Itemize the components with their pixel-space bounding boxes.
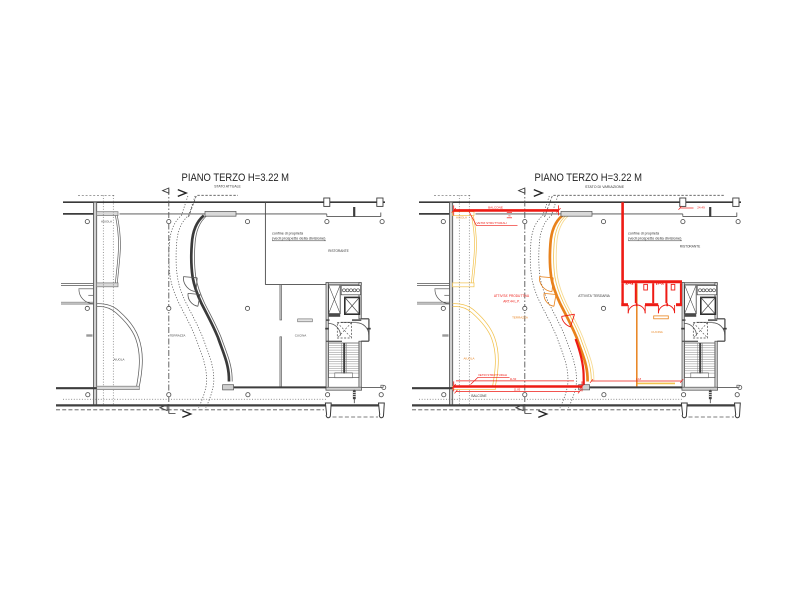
svg-text:CUCINA: CUCINA bbox=[295, 333, 307, 337]
svg-text:AIUOLA: AIUOLA bbox=[463, 357, 474, 361]
svg-text:BALCONE: BALCONE bbox=[488, 205, 503, 209]
svg-text:AIUOLA: AIUOLA bbox=[456, 216, 467, 220]
svg-text:(vedi prospetto della division: (vedi prospetto della divisione) bbox=[628, 236, 682, 240]
svg-text:RISTORANTE: RISTORANTE bbox=[328, 249, 349, 253]
svg-text:ATTIVITA' TERZIARIA: ATTIVITA' TERZIARIA bbox=[578, 294, 610, 298]
svg-text:PIANO TERZO H=3.22 M: PIANO TERZO H=3.22 M bbox=[534, 172, 642, 184]
svg-text:11.85: 11.85 bbox=[514, 388, 521, 392]
svg-text:STATO DI VARIAZIONE: STATO DI VARIAZIONE bbox=[585, 185, 624, 189]
svg-text:11.50: 11.50 bbox=[510, 377, 517, 381]
svg-text:PIANO TERZO H=3.22 M: PIANO TERZO H=3.22 M bbox=[182, 172, 290, 184]
svg-text:AIUOLA: AIUOLA bbox=[113, 358, 124, 362]
svg-text:confine di proprietà: confine di proprietà bbox=[272, 231, 303, 235]
svg-text:ART.44 L.P.: ART.44 L.P. bbox=[503, 300, 520, 304]
svg-text:TERRAZZA: TERRAZZA bbox=[512, 316, 528, 320]
svg-text:24.49: 24.49 bbox=[697, 206, 705, 210]
svg-text:VETRI STRUTTURALI: VETRI STRUTTURALI bbox=[477, 221, 508, 225]
svg-text:TERRAZZA: TERRAZZA bbox=[170, 333, 186, 337]
svg-text:CUCINA: CUCINA bbox=[651, 330, 663, 334]
svg-text:4.18: 4.18 bbox=[636, 377, 642, 381]
svg-text:STATO ATTUALE: STATO ATTUALE bbox=[214, 185, 241, 189]
svg-text:VETRI STRUTTURALI: VETRI STRUTTURALI bbox=[478, 373, 507, 377]
svg-text:(vedi prospetto della division: (vedi prospetto della divisione) bbox=[272, 236, 326, 240]
svg-text:AIUOLA: AIUOLA bbox=[101, 220, 112, 224]
svg-text:confine di proprietà: confine di proprietà bbox=[628, 231, 659, 235]
svg-text:ATTIVITA' PRODUTTIVA: ATTIVITA' PRODUTTIVA bbox=[494, 294, 530, 298]
svg-text:BALCONE: BALCONE bbox=[471, 394, 486, 398]
svg-text:RISTORANTE: RISTORANTE bbox=[680, 245, 701, 249]
